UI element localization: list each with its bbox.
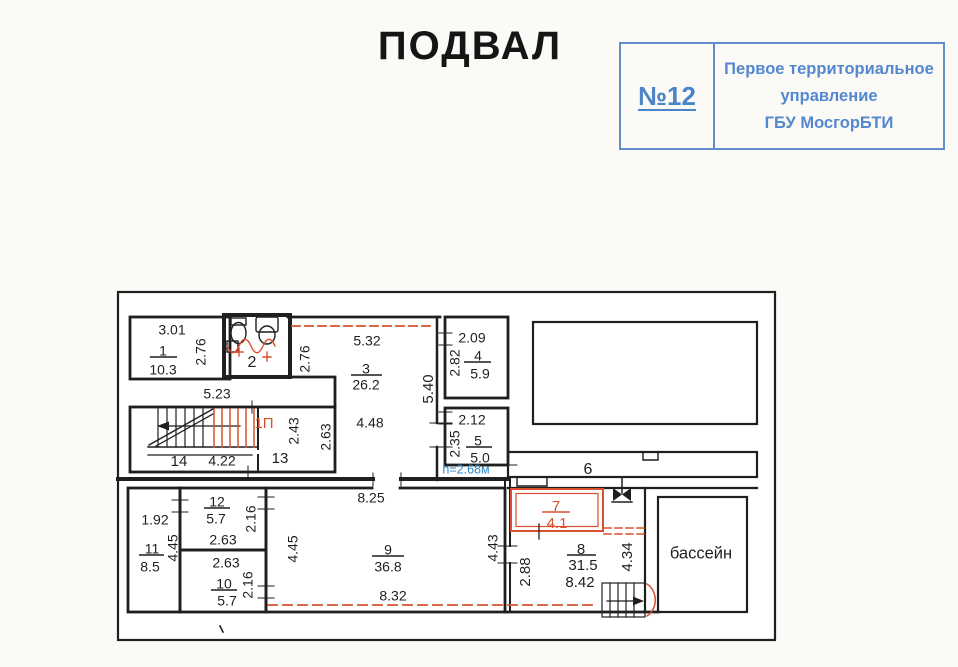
label-r4-w: 2.09 xyxy=(458,330,485,346)
label-r3-area: 26.2 xyxy=(352,377,379,393)
label-r11-h: 4.45 xyxy=(165,534,181,561)
label-pool-label: бассейн xyxy=(670,544,732,562)
label-r13-243: 2.43 xyxy=(286,417,302,444)
label-r8-h2: 4.34 xyxy=(619,542,636,571)
label-w34-540: 5.40 xyxy=(420,374,437,403)
label-r5-h: 2.35 xyxy=(447,430,463,457)
label-r7-area: 4.1 xyxy=(547,515,568,532)
label-r11-area: 8.5 xyxy=(140,559,160,575)
label-r12-w: 2.63 xyxy=(209,532,236,548)
label-stair-1p: 1П xyxy=(254,415,273,432)
label-r3-448: 4.48 xyxy=(356,415,383,431)
label-r8-w: 8.42 xyxy=(565,574,594,591)
label-r5-w: 2.12 xyxy=(458,412,485,428)
label-r13-num: 13 xyxy=(272,450,289,467)
label-r9-area: 36.8 xyxy=(374,559,401,575)
label-r1-area: 10.3 xyxy=(149,362,176,378)
label-r9-w2: 8.32 xyxy=(379,588,406,604)
label-r9-h2: 4.43 xyxy=(485,534,501,561)
label-r14-422: 4.22 xyxy=(208,453,235,469)
label-r3-263: 2.63 xyxy=(318,423,334,450)
label-r12-h: 2.16 xyxy=(243,505,259,532)
label-r10-h: 2.16 xyxy=(240,571,256,598)
label-r12-area: 5.7 xyxy=(206,511,226,527)
label-r5-height: h=2.68м xyxy=(442,462,489,476)
label-r6-num: 6 xyxy=(584,461,593,478)
scanned-floorplan-page: { "header": { "title": "ПОДВАЛ" }, "stam… xyxy=(0,0,958,667)
label-r10-area: 5.7 xyxy=(217,593,237,609)
label-r8-area: 31.5 xyxy=(568,557,597,574)
label-r14-num: 14 xyxy=(171,453,188,470)
label-r3-w: 5.32 xyxy=(353,333,380,349)
label-r4-area: 5.9 xyxy=(470,366,490,382)
label-r4-h: 2.82 xyxy=(447,349,463,376)
label-r3-h1: 2.76 xyxy=(297,345,313,372)
label-r11-w: 1.92 xyxy=(141,512,168,528)
label-corr-523: 5.23 xyxy=(203,386,230,402)
label-r1-h: 2.76 xyxy=(193,338,209,365)
label-r2-num: 2 xyxy=(248,354,257,371)
label-r10-w: 2.63 xyxy=(212,555,239,571)
label-r8-h1: 2.88 xyxy=(517,557,534,586)
floor-plan-svg: 3.01110.32.7625.235.322.76326.24.482.631… xyxy=(0,0,958,667)
label-r9-h1: 4.45 xyxy=(285,535,301,562)
label-r1-w: 3.01 xyxy=(158,322,185,338)
label-r9-w1: 8.25 xyxy=(357,490,384,506)
